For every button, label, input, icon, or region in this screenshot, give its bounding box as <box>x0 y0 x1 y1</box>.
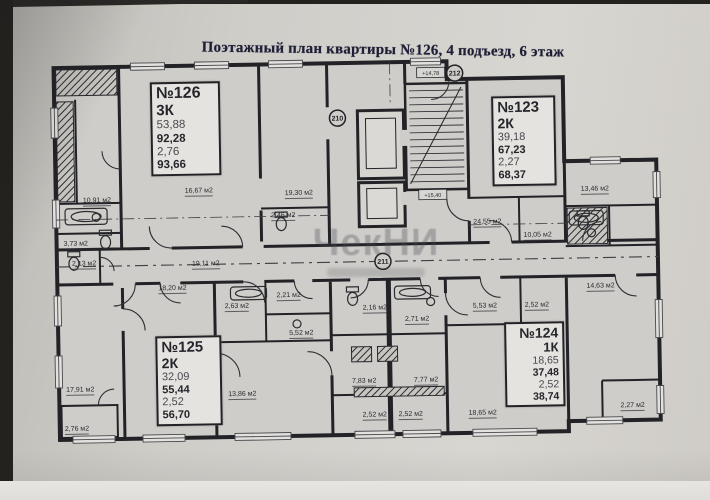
apartment-type: 1К <box>510 340 558 355</box>
apartment-area: 55,44 <box>162 383 216 397</box>
apartment-area: 92,28 <box>157 132 215 146</box>
elevators <box>357 110 409 227</box>
apartment-number: №125 <box>161 339 215 356</box>
apartment-total-area: 93,66 <box>157 158 215 172</box>
room-area-label: 13,86 м2 <box>228 391 256 400</box>
apartment-area: 67,23 <box>498 143 550 157</box>
apartment-number: №123 <box>497 99 549 116</box>
apartment-info-123: №123 2К 39,18 67,23 2,27 68,37 <box>491 95 557 186</box>
room-area-label: 2,13 м2 <box>72 260 96 269</box>
apartment-total-area: 68,37 <box>498 168 550 182</box>
room-area-label: 18,20 м2 <box>158 285 186 294</box>
room-area-label: 2,63 м2 <box>225 303 249 312</box>
room-area-label: 2,16 м2 <box>363 304 387 313</box>
room-area-label: 10,05 м2 <box>523 231 551 240</box>
apartment-balcony-area: 2,27 <box>498 156 550 170</box>
plan-sheet: 210 212 211 +14,78 +15,40 10,91 м2 3,73 … <box>0 0 710 500</box>
photo-bottom-strip <box>0 481 710 500</box>
apartment-type: 2К <box>497 115 549 131</box>
apartment-living-area: 39,18 <box>498 131 550 145</box>
apartment-total-area: 56,70 <box>162 408 216 422</box>
elevation-mark-landing: +15,40 <box>424 193 441 199</box>
apartment-living-area: 32,09 <box>162 370 216 384</box>
room-area-label: 2,76 м2 <box>65 426 89 435</box>
floor-plan-photo: Поэтажный план квартиры №126, 4 подъезд,… <box>0 0 710 500</box>
room-area-label: 19,30 м2 <box>285 190 313 199</box>
apartment-info-125: №125 2К 32,09 55,44 2,52 56,70 <box>155 335 223 426</box>
apartment-balcony-area: 2,76 <box>157 145 215 159</box>
photo-edge-left <box>0 0 13 482</box>
apartment-info-124: №124 1К 18,65 37,48 2,52 38,74 <box>504 321 565 407</box>
room-area-label: 5,53 м2 <box>473 302 497 311</box>
apartment-info-126: №126 3К 53,88 92,28 2,76 93,66 <box>150 81 222 176</box>
room-area-label: 14,63 м2 <box>586 282 614 291</box>
room-area-label: 17,91 м2 <box>66 386 94 395</box>
room-area-label: 7,83 м2 <box>352 377 376 386</box>
room-area-label: 2,27 м2 <box>620 402 644 411</box>
room-area-label: 18,65 м2 <box>469 409 497 418</box>
apartment-type: 2К <box>162 355 216 371</box>
apartment-living-area: 53,88 <box>156 119 214 133</box>
room-area-label: 5,52 м2 <box>289 330 313 339</box>
apartment-number: №126 <box>156 85 214 103</box>
room-area-label: 2,52 м2 <box>363 411 387 420</box>
room-area-label: 2,52 м2 <box>525 301 549 310</box>
apartment-total-area: 38,74 <box>511 390 559 403</box>
apartment-living-area: 18,65 <box>511 354 559 367</box>
floor-plan-drawing: 210 212 211 +14,78 +15,40 <box>0 0 710 500</box>
room-area-label: 3,73 м2 <box>64 241 88 250</box>
apartment-balcony-area: 2,52 <box>511 378 559 391</box>
room-area-label: 2,71 м2 <box>405 316 429 325</box>
room-area-label: 16,67 м2 <box>185 187 213 196</box>
apartment-balcony-area: 2,52 <box>162 396 216 410</box>
badge-212: 212 <box>449 70 461 77</box>
room-area-label: 7,77 м2 <box>414 376 438 385</box>
room-area-label: 2,21 м2 <box>276 292 300 301</box>
elevation-mark-upper: +14,78 <box>422 71 439 77</box>
apartment-area: 37,48 <box>511 366 559 379</box>
room-area-label: 10,91 м2 <box>83 197 111 206</box>
apartment-type: 3К <box>156 102 214 120</box>
room-area-label: 24,55 м2 <box>473 218 501 227</box>
badge-211: 211 <box>377 259 389 266</box>
room-area-label: 2,46 м2 <box>271 212 295 221</box>
badge-210: 210 <box>332 116 344 123</box>
room-area-label: 19,11 м2 <box>192 260 220 269</box>
room-area-label: 13,46 м2 <box>581 185 609 194</box>
room-area-label: 2,52 м2 <box>399 411 423 420</box>
